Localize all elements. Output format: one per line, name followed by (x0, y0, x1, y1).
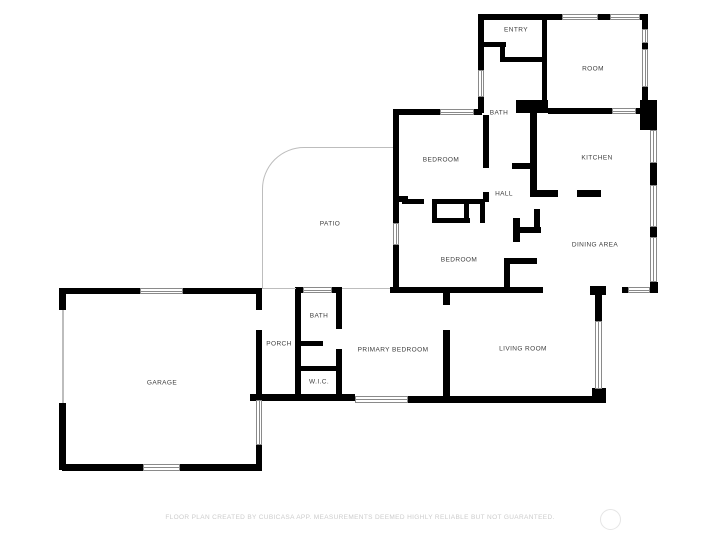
wall-segment (542, 14, 547, 112)
window-symbol (650, 237, 657, 282)
window-symbol (612, 108, 636, 114)
room-label-primary-bedroom: PRIMARY BEDROOM (358, 347, 429, 354)
window-symbol (303, 287, 332, 293)
wall-segment (474, 109, 482, 115)
room-label-dining-area: DINING AREA (572, 242, 618, 249)
wall-segment (393, 245, 399, 293)
room-label-entry: ENTRY (504, 27, 528, 34)
room-label-wic: W.I.C. (309, 379, 329, 386)
window-symbol (650, 130, 657, 163)
wall-segment (59, 288, 66, 310)
wall-segment (393, 109, 440, 115)
wall-segment (478, 14, 564, 20)
wall-segment (548, 108, 612, 114)
wall-segment (180, 464, 262, 471)
wall-segment (300, 341, 323, 346)
wall-segment (256, 288, 262, 310)
patio-outline (262, 147, 399, 289)
wall-segment (390, 287, 543, 293)
wall-segment (500, 57, 547, 62)
wall-segment (480, 199, 485, 223)
window-symbol (355, 396, 408, 403)
window-symbol (595, 321, 602, 389)
wall-segment (534, 209, 540, 233)
wall-segment (590, 286, 606, 295)
wall-segment (483, 115, 489, 168)
window-symbol (478, 70, 484, 97)
wall-segment (650, 227, 657, 237)
room-label-garage: GARAGE (147, 380, 177, 387)
wall-segment (336, 349, 342, 400)
room-label-hall: HALL (495, 191, 513, 198)
wall-segment (516, 100, 548, 113)
wall-segment (250, 394, 355, 401)
window-symbol (393, 223, 399, 245)
floorplan-canvas: ENTRYROOMBATHBEDROOMKITCHENHALLPATIODINI… (0, 0, 720, 540)
wall-segment (577, 190, 601, 197)
wall-segment (300, 366, 342, 371)
wall-segment (402, 199, 424, 204)
wall-segment (393, 109, 399, 223)
wall-segment (443, 330, 450, 400)
wall-segment (642, 14, 648, 29)
wall-segment (504, 258, 510, 290)
wall-segment (336, 287, 342, 329)
floor-plan: ENTRYROOMBATHBEDROOMKITCHENHALLPATIODINI… (0, 0, 720, 540)
window-symbol (440, 109, 474, 115)
wall-segment (443, 291, 450, 305)
window-symbol (562, 14, 598, 20)
window-symbol (642, 29, 648, 43)
window-symbol (140, 288, 183, 294)
room-label-living-room: LIVING ROOM (499, 346, 547, 353)
room-label-bath-upper: BATH (490, 110, 508, 117)
room-label-kitchen: KITCHEN (581, 155, 612, 162)
window-symbol (628, 287, 650, 293)
window-symbol (642, 49, 648, 87)
wall-segment (432, 199, 485, 204)
wall-segment (513, 218, 520, 242)
wall-segment (530, 190, 558, 197)
room-label-patio: PATIO (320, 221, 341, 228)
wall-segment (512, 163, 530, 169)
room-label-porch: PORCH (266, 341, 291, 348)
wall-segment (592, 388, 606, 403)
wall-segment (59, 403, 66, 470)
wall-segment (183, 288, 262, 294)
wall-segment (595, 295, 602, 321)
porch-top-line (262, 288, 296, 289)
wall-segment (408, 396, 598, 403)
wall-segment (256, 330, 262, 400)
room-label-bedroom-lower: BEDROOM (441, 257, 477, 264)
window-symbol (143, 464, 180, 471)
garage-door-line (62, 310, 64, 403)
wall-segment (530, 113, 537, 193)
wall-segment (640, 100, 657, 130)
footer-disclaimer: FLOOR PLAN CREATED BY CUBICASA APP. MEAS… (0, 514, 720, 521)
window-symbol (256, 400, 262, 445)
wall-segment (62, 464, 143, 471)
window-symbol (610, 14, 640, 20)
window-symbol (650, 185, 657, 227)
wall-segment (62, 288, 140, 294)
wall-segment (650, 163, 657, 185)
room-label-bedroom-upper: BEDROOM (423, 157, 459, 164)
room-label-bath-lower: BATH (310, 313, 328, 320)
wall-segment (432, 218, 470, 223)
wall-segment (650, 282, 658, 293)
room-label-room: ROOM (582, 66, 604, 73)
wall-segment (256, 445, 262, 470)
